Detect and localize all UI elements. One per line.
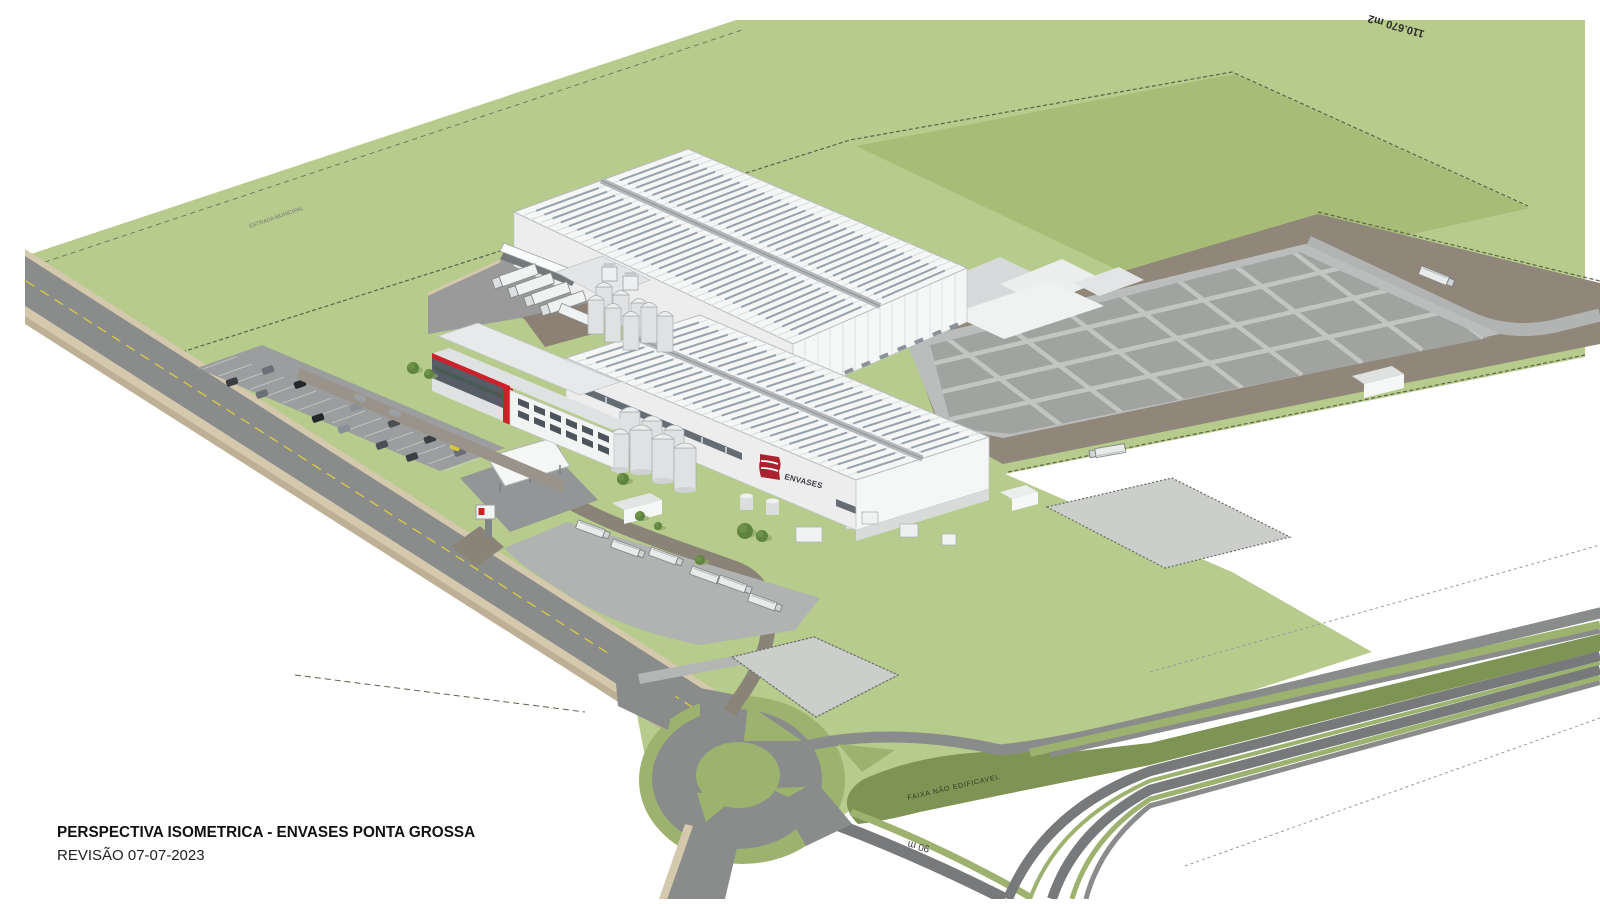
svg-text:PERSPECTIVA ISOMETRICA - ENVAS: PERSPECTIVA ISOMETRICA - ENVASES PONTA G… bbox=[57, 824, 475, 841]
svg-text:REVISÃO 07-07-2023: REVISÃO 07-07-2023 bbox=[57, 847, 205, 864]
